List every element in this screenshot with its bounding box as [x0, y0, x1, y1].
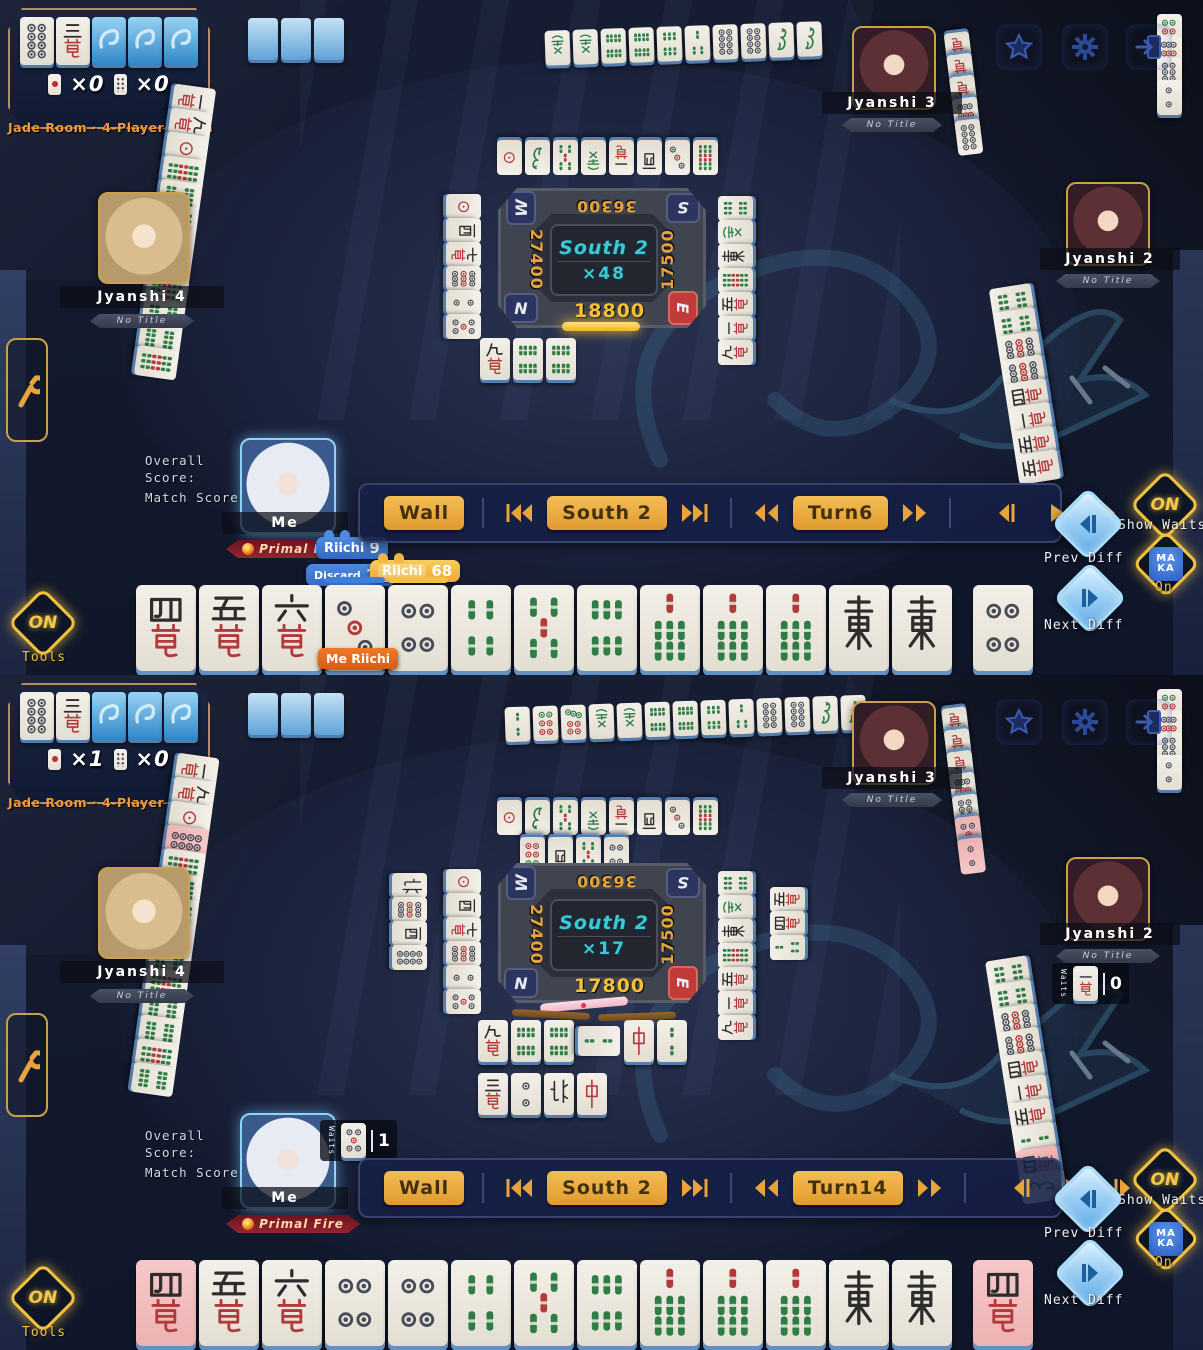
mahjong-tile-5s — [553, 800, 578, 835]
skip-start-icon — [504, 502, 534, 524]
tile-slot — [712, 220, 758, 244]
show-waits-label: Show Waits — [1118, 1193, 1203, 1208]
mahjong-tile-1s — [796, 21, 822, 57]
divider — [482, 1173, 484, 1203]
mahjong-tile-8p — [784, 697, 810, 733]
mahjong-tile-W — [446, 893, 481, 918]
settings-button[interactable] — [1062, 24, 1108, 70]
skip-end-icon — [680, 502, 710, 524]
tile-slot — [440, 917, 486, 941]
mahjong-tile-3p — [665, 140, 690, 175]
overall-score-label: Overall Score: — [145, 452, 241, 486]
replay-control-bar: Wall South 2 Turn14 — [358, 1158, 1062, 1218]
waits-count: 1 — [378, 1131, 390, 1151]
tile-slot — [440, 242, 486, 266]
wall-button[interactable]: Wall — [384, 496, 464, 530]
pond-right-col2 — [764, 887, 810, 959]
mahjong-tile-5p — [446, 314, 481, 339]
mahjong-tile-W — [637, 800, 662, 835]
tile-slot — [950, 124, 986, 150]
tile-slot — [712, 991, 758, 1015]
player-title-me: Primal Fire — [226, 1215, 360, 1233]
mahjong-tile-5p — [446, 989, 481, 1014]
tile-slot — [712, 967, 758, 991]
mahjong-tile-back — [281, 18, 311, 60]
tile-slot — [386, 873, 432, 897]
maka-logo-bottom: KA — [1157, 564, 1175, 574]
me-riichi-badge: Me Riichi — [318, 648, 398, 669]
mahjong-tile-back — [128, 17, 162, 65]
tile-slot — [1014, 452, 1063, 483]
red-five-pin-icon — [48, 749, 61, 770]
me-waits-indicator: Waits 1 — [320, 1120, 397, 1161]
mahjong-tile-1m — [609, 140, 634, 175]
multiplier-label: ×48 — [582, 264, 626, 284]
favorite-button[interactable] — [996, 24, 1042, 70]
mahjong-tile-F — [544, 30, 570, 66]
skip-to-round-start-button[interactable] — [502, 500, 536, 526]
waits-label: Waits — [1059, 969, 1068, 998]
tile-slot — [386, 897, 432, 921]
divider — [949, 498, 951, 528]
seat-south: S — [666, 193, 700, 223]
mahjong-tile-6s — [718, 196, 753, 221]
mahjong-tile-7m — [446, 242, 481, 267]
player-title-jyanshi3: No Title — [842, 118, 942, 132]
round-label: South 2 — [559, 237, 649, 259]
tile-slot — [712, 871, 758, 895]
mahjong-tile-back — [128, 692, 162, 740]
tools-label: Tools — [22, 650, 66, 665]
mahjong-tile-4m — [136, 1260, 196, 1346]
mahjong-tile-C — [624, 1020, 654, 1062]
tile-slot — [764, 911, 810, 935]
mahjong-tile-4p — [325, 1260, 385, 1346]
pond-right — [712, 196, 758, 364]
maka-state-label: On — [1155, 1255, 1173, 1270]
skip-start-icon — [504, 1177, 534, 1199]
mahjong-tile-3s — [684, 25, 710, 61]
tile-slot — [764, 887, 810, 911]
pond-me — [478, 1020, 687, 1062]
divider — [557, 261, 651, 262]
player-title-jyanshi3: No Title — [842, 793, 942, 807]
replay-control-bar: Wall South 2 Turn6 — [358, 483, 1062, 543]
mahjong-tile-4p — [973, 585, 1033, 671]
maka-logo: MAKA — [1149, 1222, 1183, 1256]
tile-slot — [440, 941, 486, 965]
show-waits-state: ON — [1151, 1172, 1180, 1189]
mahjong-tile-8s — [511, 1020, 541, 1062]
divider — [730, 498, 732, 528]
rewind-icon — [752, 502, 780, 524]
score-shimocha: 17500 — [658, 229, 677, 290]
active-player-bar — [562, 322, 640, 331]
hint-bar-blue — [325, 577, 385, 583]
mahjong-tile-2s — [504, 706, 530, 742]
mahjong-tile-7s — [703, 585, 763, 671]
divider — [557, 936, 651, 937]
pond-top — [497, 140, 718, 175]
waits-label: Waits — [327, 1126, 336, 1155]
tile-slot — [132, 348, 181, 378]
mahjong-tile-E — [892, 1260, 952, 1346]
mahjong-tile-1s — [525, 800, 550, 835]
player-name-jyanshi3: Jyanshi 3 — [822, 767, 962, 789]
star-icon — [1004, 32, 1034, 62]
mahjong-tile-3p — [665, 800, 690, 835]
mahjong-tile-back — [92, 17, 126, 65]
tile-slot — [712, 340, 758, 364]
flame-icon — [242, 543, 254, 555]
mahjong-tile-1m — [718, 991, 753, 1016]
tile-slot — [440, 218, 486, 242]
maka-logo-bottom: KA — [1157, 1239, 1175, 1249]
mahjong-tile-8s — [644, 702, 670, 738]
mahjong-tile-1m — [1073, 966, 1098, 1001]
mahjong-tile-7s — [640, 1260, 700, 1346]
exit-button[interactable] — [1126, 699, 1172, 745]
tile-slot — [440, 314, 486, 338]
skip-to-round-end-button[interactable] — [678, 1175, 712, 1201]
mahjong-tile-back — [164, 692, 198, 740]
mahjong-tile-2p — [1157, 80, 1182, 115]
mahjong-tile-3m — [56, 692, 90, 740]
mahjong-tile-6s — [700, 700, 726, 736]
tile-slot — [764, 935, 810, 959]
mahjong-tile-1s — [768, 22, 794, 58]
divider — [1103, 973, 1105, 995]
prev-diff-icon — [1076, 1188, 1100, 1210]
next-diff-icon — [1078, 587, 1102, 609]
mahjong-tile-1s — [525, 140, 550, 175]
wrench-icon — [14, 1035, 40, 1095]
mahjong-tile-7p — [560, 704, 586, 740]
mahjong-tile-9s — [693, 140, 718, 175]
star-icon — [1004, 707, 1034, 737]
exit-icon — [1134, 32, 1164, 62]
mahjong-tile-6s — [577, 1260, 637, 1346]
player-name-me: Me — [222, 1187, 348, 1209]
mahjong-tile-N — [392, 873, 427, 898]
mahjong-tile-5p — [341, 1123, 366, 1158]
exit-button[interactable] — [1126, 24, 1172, 70]
round-indicator: South 2 ×17 — [550, 899, 658, 971]
mahjong-tile-1p — [446, 194, 481, 219]
hint-bar-gold — [388, 577, 448, 583]
mahjong-tile-4p — [388, 1260, 448, 1346]
mahjong-tile-5m — [718, 292, 753, 317]
score-me: 17800 — [574, 975, 645, 997]
tools-label: Tools — [22, 1325, 66, 1340]
replay-screen-turn6: ×0 ×0 Jade Room · 4-Player South Jyanshi… — [0, 0, 1203, 675]
replay-screen-turn14: ×1 ×0 Jade Room · 4-Player South Jyanshi… — [0, 675, 1203, 1350]
mahjong-tile-2p — [446, 965, 481, 990]
mahjong-tile-1s — [812, 696, 838, 732]
player-name-jyanshi4: Jyanshi 4 — [60, 961, 224, 983]
pond-right — [712, 871, 758, 1039]
tile-slot — [712, 943, 758, 967]
pond-me-row2 — [478, 1073, 607, 1115]
pond-me — [480, 338, 576, 380]
player-title-jyanshi4: No Title — [90, 989, 194, 1003]
tile-slot — [129, 1064, 178, 1094]
floor-pillar-right — [1173, 925, 1203, 1350]
mahjong-tile-5m — [199, 1260, 259, 1346]
drawn-tile — [973, 585, 1033, 671]
mahjong-tile-W — [637, 140, 662, 175]
seat-east-dealer: E — [668, 291, 698, 325]
fast-forward-icon — [901, 502, 929, 524]
flame-icon — [242, 1218, 254, 1230]
mahjong-tile-2p — [511, 1073, 541, 1115]
player-title-jyanshi4: No Title — [90, 314, 194, 328]
seat-north: N — [504, 293, 538, 323]
score-kamicha: 27400 — [527, 229, 546, 290]
mahjong-tile-6m — [262, 585, 322, 671]
mahjong-tile-E — [718, 919, 753, 944]
mahjong-tile-W — [446, 218, 481, 243]
red-five-sou-count: ×0 — [136, 72, 170, 96]
winning-tile — [973, 1260, 1033, 1346]
mahjong-tile-9m — [718, 1015, 753, 1040]
mahjong-tile-1p — [497, 800, 522, 835]
mahjong-tile-back — [281, 693, 311, 735]
mahjong-tile-F — [718, 220, 753, 245]
mahjong-tile-2s — [657, 1020, 687, 1062]
mahjong-tile-2p — [957, 837, 986, 875]
step-back-button[interactable] — [993, 500, 1019, 526]
red-five-pin-count: ×0 — [70, 72, 104, 96]
skip-to-round-end-button[interactable] — [678, 500, 712, 526]
my-hand — [136, 1260, 952, 1346]
jyanshi2-waits-indicator: Waits 0 — [1052, 963, 1129, 1004]
mahjong-tile-F — [581, 140, 606, 175]
mahjong-tile-8p — [20, 17, 54, 65]
mahjong-tile-8p — [954, 118, 983, 156]
mahjong-tile-back — [314, 693, 344, 735]
dora-tiles — [10, 692, 208, 740]
mahjong-tile-3s — [728, 699, 754, 735]
maka-logo: MAKA — [1149, 547, 1183, 581]
mahjong-tile-6s — [577, 585, 637, 671]
mahjong-tile-8p — [392, 945, 427, 970]
next-diff-icon — [1078, 1262, 1102, 1284]
mahjong-tile-7s — [703, 1260, 763, 1346]
maka-state-label: On — [1155, 580, 1173, 595]
mahjong-tile-8p — [712, 24, 738, 60]
player-name-jyanshi2: Jyanshi 2 — [1040, 248, 1180, 270]
mahjong-tile-6m — [262, 1260, 322, 1346]
turn-button[interactable]: Turn6 — [793, 496, 889, 530]
next-turn-button[interactable] — [899, 500, 931, 526]
mahjong-tile-7s — [766, 585, 826, 671]
prev-turn-button[interactable] — [750, 1175, 782, 1201]
score-shimocha: 17500 — [658, 904, 677, 965]
mahjong-tile-8s — [513, 338, 543, 380]
dora-tiles — [10, 17, 208, 65]
wall-button[interactable]: Wall — [384, 1171, 464, 1205]
next-diff-label: Next Diff — [1044, 1293, 1123, 1308]
step-back-icon — [995, 502, 1017, 524]
mahjong-tile-8s — [672, 701, 698, 737]
mahjong-tile-back — [92, 692, 126, 740]
mahjong-tile-C — [577, 1073, 607, 1115]
multiplier-label: ×17 — [582, 939, 626, 959]
favorite-button[interactable] — [996, 699, 1042, 745]
mahjong-tile-F — [572, 29, 598, 65]
round-label: South 2 — [559, 912, 649, 934]
mahjong-tile-9s — [693, 800, 718, 835]
mahjong-tile-E — [718, 244, 753, 269]
score-kamicha: 27400 — [527, 904, 546, 965]
mahjong-tile-7s — [766, 1260, 826, 1346]
wall-tiles-top — [248, 693, 344, 735]
player-title-jyanshi2: No Title — [1056, 949, 1160, 963]
mahjong-tile-1p — [497, 140, 522, 175]
tile-slot — [712, 268, 758, 292]
overall-score-label: Overall Score: — [145, 1127, 241, 1161]
pond-left — [440, 194, 486, 338]
round-button[interactable]: South 2 — [547, 496, 667, 530]
tile-slot — [1152, 761, 1186, 783]
player-name-jyanshi4: Jyanshi 4 — [60, 286, 224, 308]
tile-slot — [440, 266, 486, 290]
mahjong-tile-1m — [609, 800, 634, 835]
gear-icon — [1070, 707, 1100, 737]
settings-button[interactable] — [1062, 699, 1108, 745]
mahjong-tile-8p — [20, 692, 54, 740]
tile-slot — [712, 316, 758, 340]
mahjong-tile-5s — [514, 585, 574, 671]
mahjong-tile-8s — [600, 28, 626, 64]
title-text: Primal Fire — [259, 1217, 344, 1231]
mahjong-tile-9m — [478, 1020, 508, 1062]
red-five-pin-count: ×1 — [70, 747, 104, 771]
mahjong-tile-F — [718, 895, 753, 920]
mahjong-tile-9p — [392, 897, 427, 922]
mahjong-tile-8s — [130, 1062, 176, 1098]
mahjong-tile-6s — [718, 871, 753, 896]
red-five-sou-icon — [114, 74, 127, 95]
score-toimen: 36300 — [576, 872, 637, 891]
divider — [371, 1130, 373, 1152]
wrench-icon — [14, 360, 40, 420]
mahjong-tile-2p — [1157, 755, 1182, 790]
pond-left-col2 — [386, 873, 432, 969]
mahjong-tile-back — [248, 18, 278, 60]
round-button[interactable]: South 2 — [547, 1171, 667, 1205]
mahjong-tile-W — [392, 921, 427, 946]
seat-east-dealer: E — [668, 966, 698, 1000]
waits-tile — [1073, 966, 1098, 1001]
mahjong-tile-9p — [446, 941, 481, 966]
mahjong-tile-3m — [56, 17, 90, 65]
show-waits-label: Show Waits — [1118, 518, 1203, 533]
center-score-panel: W S N E 36300 27400 17500 17800 South 2 … — [498, 863, 706, 1003]
mahjong-tile-5m — [199, 585, 259, 671]
round-indicator: South 2 ×48 — [550, 224, 658, 296]
gear-icon — [1070, 32, 1100, 62]
mahjong-tile-8p — [740, 23, 766, 59]
player-name-jyanshi3: Jyanshi 3 — [822, 92, 962, 114]
mahjong-tile-F — [588, 704, 614, 740]
mahjong-tile-back — [164, 17, 198, 65]
rewind-icon — [752, 1177, 780, 1199]
exit-icon — [1134, 707, 1164, 737]
avatar-jyanshi4[interactable] — [98, 192, 190, 284]
wrench-panel-button[interactable] — [6, 338, 48, 442]
waits-tile — [341, 1123, 366, 1158]
mahjong-tile-4m — [136, 585, 196, 671]
mahjong-tile-5s — [514, 1260, 574, 1346]
tile-slot — [1152, 86, 1186, 108]
mahjong-tile-8s — [628, 27, 654, 63]
next-turn-button[interactable] — [914, 1175, 946, 1201]
step-back-button[interactable] — [1008, 1175, 1034, 1201]
tile-slot — [440, 194, 486, 218]
mahjong-tile-8p — [756, 698, 782, 734]
player-name-jyanshi2: Jyanshi 2 — [1040, 923, 1180, 945]
mahjong-tile-9m — [718, 340, 753, 365]
red-five-sou-count: ×0 — [136, 747, 170, 771]
mahjong-tile-E — [829, 585, 889, 671]
prev-turn-button[interactable] — [750, 500, 782, 526]
tile-slot — [440, 290, 486, 314]
mahjong-tile-E — [892, 585, 952, 671]
mahjong-tile-7s — [640, 585, 700, 671]
mahjong-tile-N — [544, 1073, 574, 1115]
prev-diff-label: Prev Diff — [1044, 551, 1123, 566]
tile-slot — [440, 869, 486, 893]
pond-left — [440, 869, 486, 1013]
skip-to-round-start-button[interactable] — [502, 1175, 536, 1201]
mahjong-tile-E — [829, 1260, 889, 1346]
my-hand — [136, 585, 952, 671]
tile-slot — [712, 1015, 758, 1039]
mahjong-tile-5s — [553, 140, 578, 175]
mahjong-tile-3m — [478, 1073, 508, 1115]
mahjong-tile-back — [314, 18, 344, 60]
pond-top — [497, 800, 718, 835]
mahjong-tile-8s — [546, 338, 576, 380]
mahjong-tile-7m — [446, 917, 481, 942]
avatar-jyanshi4[interactable] — [98, 867, 190, 959]
mahjong-tile-9p — [446, 266, 481, 291]
divider — [482, 498, 484, 528]
mahjong-tile-9m — [480, 338, 510, 380]
red-five-pin-icon — [48, 74, 61, 95]
mahjong-tile-8s — [544, 1020, 574, 1062]
tile-slot — [386, 921, 432, 945]
mahjong-tile-5m — [770, 887, 805, 912]
mahjong-tile-2p — [446, 290, 481, 315]
tile-slot — [712, 919, 758, 943]
wrench-panel-button[interactable] — [6, 1013, 48, 1117]
waits-count: 0 — [1110, 974, 1122, 994]
mahjong-tile-F — [616, 703, 642, 739]
mahjong-tile-1p — [446, 869, 481, 894]
turn-button[interactable]: Turn14 — [793, 1171, 903, 1205]
seat-west: W — [506, 191, 536, 225]
seat-south: S — [666, 868, 700, 898]
score-me: 18800 — [574, 300, 645, 322]
mahjong-tile-1m — [718, 316, 753, 341]
mahjong-tile-6s — [656, 26, 682, 62]
mahjong-tile-5m — [718, 967, 753, 992]
show-waits-state: ON — [1151, 497, 1180, 514]
seat-west: W — [506, 866, 536, 900]
